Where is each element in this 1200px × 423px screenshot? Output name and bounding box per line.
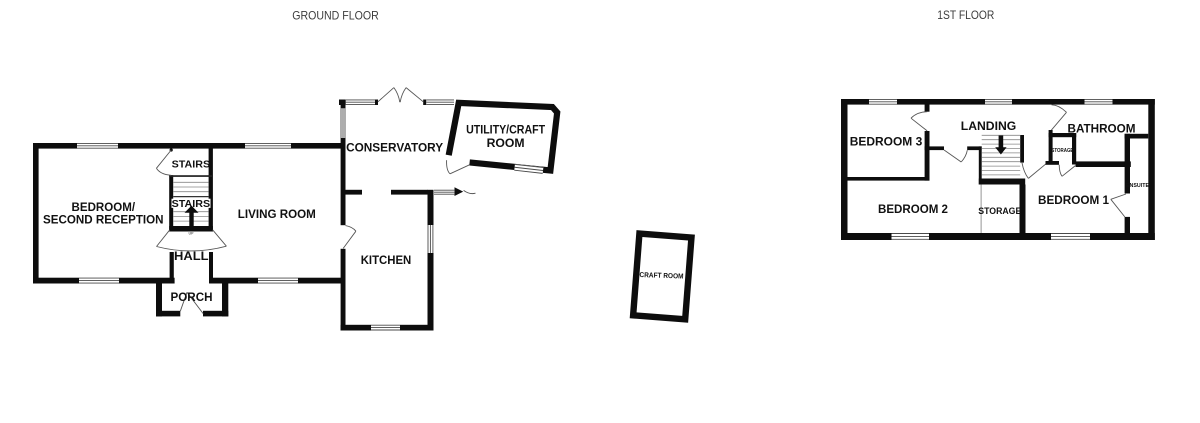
svg-text:CONSERVATORY: CONSERVATORY: [346, 141, 443, 155]
svg-text:1ST FLOOR: 1ST FLOOR: [937, 9, 994, 22]
svg-text:CRAFT ROOM: CRAFT ROOM: [639, 270, 683, 281]
svg-text:HALL: HALL: [174, 249, 209, 263]
svg-text:BEDROOM 1: BEDROOM 1: [1038, 193, 1109, 207]
svg-text:ROOM: ROOM: [487, 137, 525, 150]
svg-text:STORAGE: STORAGE: [978, 206, 1021, 216]
svg-text:STORAGE: STORAGE: [1051, 148, 1073, 154]
svg-text:UP: UP: [189, 232, 195, 236]
svg-text:LANDING: LANDING: [961, 119, 1017, 133]
svg-text:BEDROOM 2: BEDROOM 2: [878, 202, 948, 216]
svg-text:ENSUITE: ENSUITE: [1126, 183, 1149, 189]
svg-text:SECOND RECEPTION: SECOND RECEPTION: [43, 212, 164, 226]
svg-text:STAIRS: STAIRS: [172, 159, 211, 170]
svg-text:PORCH: PORCH: [171, 290, 213, 304]
svg-text:BEDROOM 3: BEDROOM 3: [850, 134, 923, 148]
svg-text:KITCHEN: KITCHEN: [361, 253, 412, 267]
svg-text:BATHROOM: BATHROOM: [1068, 121, 1136, 135]
svg-text:GROUND FLOOR: GROUND FLOOR: [292, 10, 379, 23]
svg-text:UTILITY/CRAFT: UTILITY/CRAFT: [466, 123, 545, 136]
svg-text:LIVING ROOM: LIVING ROOM: [238, 207, 316, 221]
